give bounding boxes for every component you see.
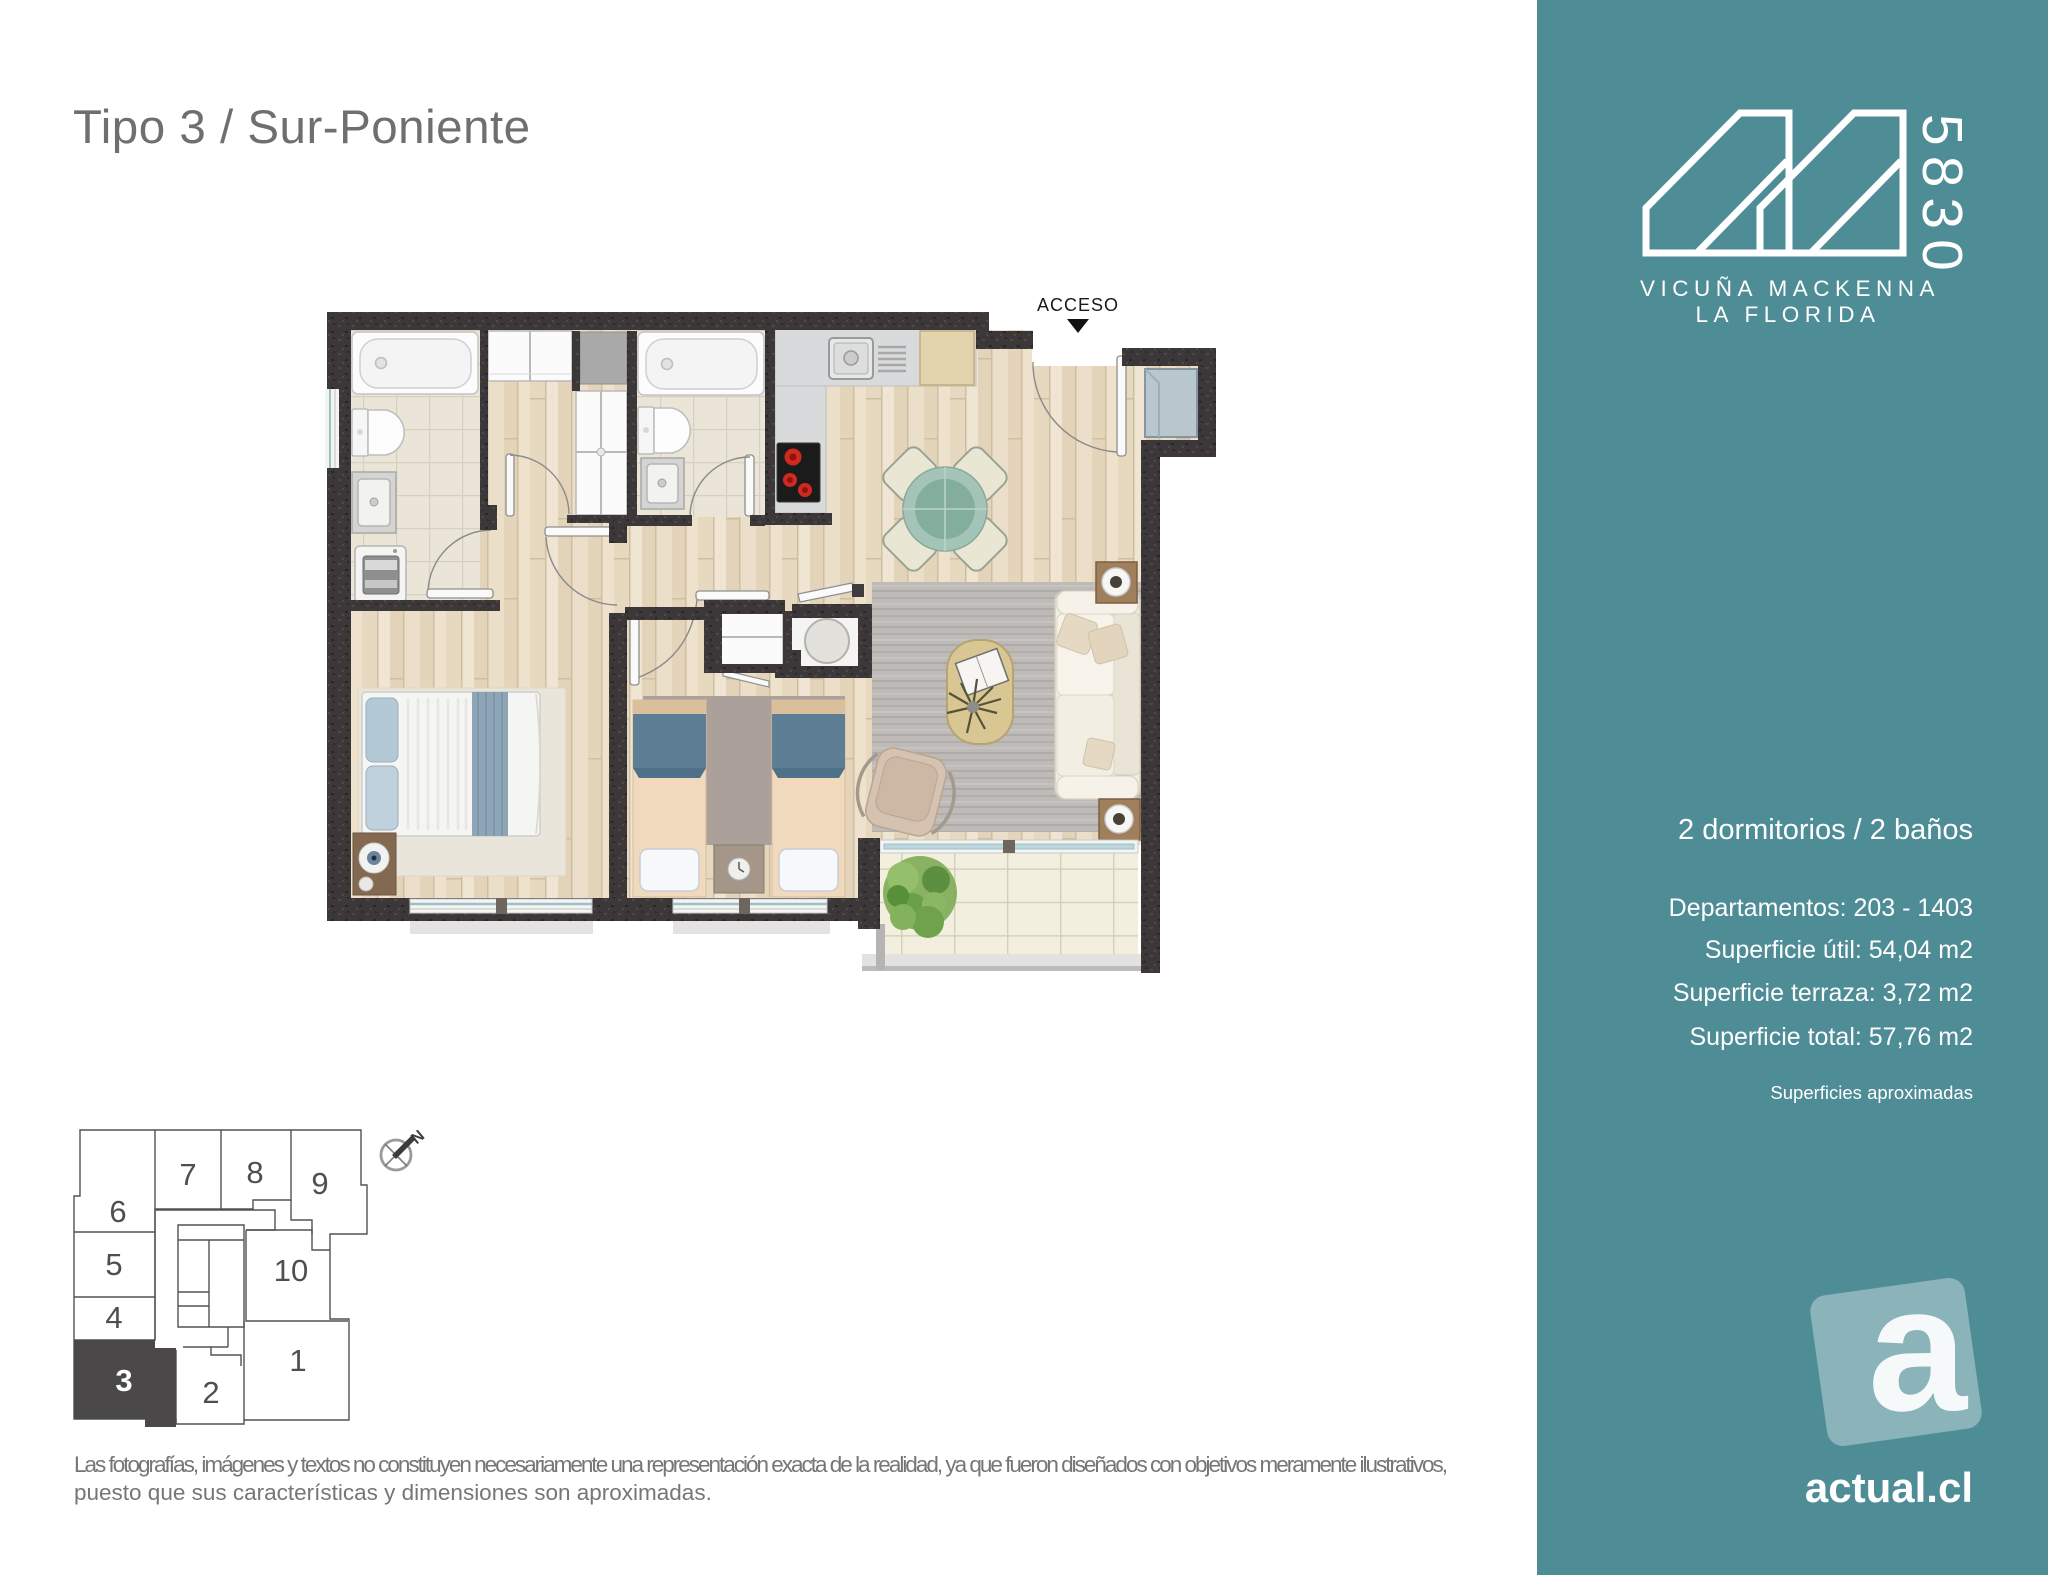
svg-text:Tipo 3 / Sur-Poniente: Tipo 3 / Sur-Poniente [73,101,531,154]
svg-text:3: 3 [115,1363,132,1398]
svg-text:VICUÑA MACKENNA: VICUÑA MACKENNA [1640,276,1940,301]
svg-text:ACCESO: ACCESO [1037,295,1119,315]
svg-text:LA FLORIDA: LA FLORIDA [1695,302,1880,327]
svg-text:6: 6 [109,1194,126,1229]
svg-text:puesto que sus características: puesto que sus características y dimensi… [74,1480,712,1505]
svg-text:5830: 5830 [1910,114,1974,281]
svg-text:9: 9 [311,1166,328,1201]
svg-text:2 dormitorios / 2 baños: 2 dormitorios / 2 baños [1678,814,1973,846]
svg-text:8: 8 [246,1155,263,1190]
svg-text:1: 1 [289,1343,306,1378]
svg-text:Superficie terraza: 3,72 m2: Superficie terraza: 3,72 m2 [1673,979,1973,1007]
svg-text:4: 4 [105,1300,122,1335]
svg-text:7: 7 [179,1157,196,1192]
svg-text:2: 2 [202,1375,219,1410]
svg-text:5: 5 [105,1247,122,1282]
svg-text:Superficies aproximadas: Superficies aproximadas [1770,1082,1973,1103]
svg-text:Departamentos: 203 - 1403: Departamentos: 203 - 1403 [1669,894,1973,922]
svg-text:10: 10 [274,1253,308,1288]
svg-text:Superficie útil: 54,04 m2: Superficie útil: 54,04 m2 [1705,936,1973,964]
svg-text:actual.cl: actual.cl [1805,1464,1973,1511]
svg-text:a: a [1868,1249,1969,1448]
svg-text:Las fotografías, imágenes y te: Las fotografías, imágenes y textos no co… [74,1452,1448,1477]
svg-text:Superficie total: 57,76 m2: Superficie total: 57,76 m2 [1690,1023,1974,1051]
